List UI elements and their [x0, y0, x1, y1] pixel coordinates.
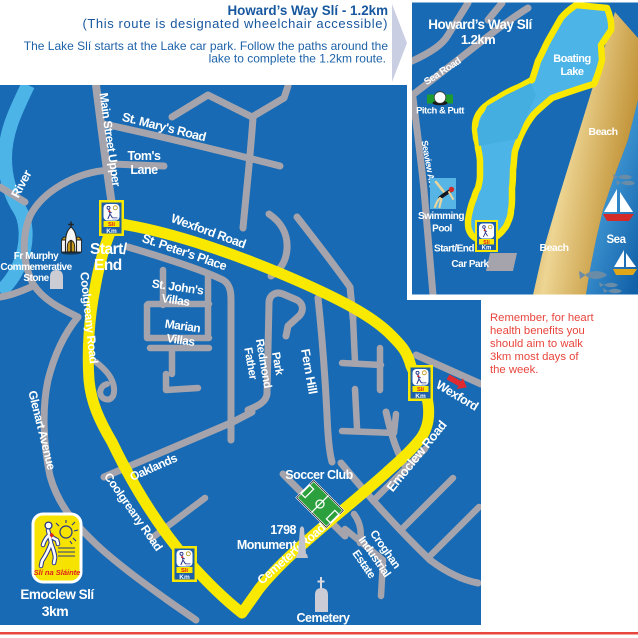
- svg-text:Sea: Sea: [607, 234, 627, 246]
- svg-text:Pitch & Putt: Pitch & Putt: [416, 106, 465, 117]
- svg-text:Howard’s Way Slí: Howard’s Way Slí: [428, 17, 533, 32]
- svg-text:Remember, for heart: Remember, for heart: [490, 312, 594, 324]
- svg-text:Car Park: Car Park: [451, 259, 489, 270]
- svg-text:Fr Murphy: Fr Murphy: [14, 251, 59, 262]
- svg-text:Tom's: Tom's: [128, 149, 161, 163]
- svg-text:Km: Km: [415, 393, 426, 400]
- svg-text:lake to complete the 1.2km rou: lake to complete the 1.2km route.: [209, 52, 386, 66]
- svg-text:1.2km: 1.2km: [461, 32, 495, 47]
- svg-text:Boating: Boating: [553, 53, 590, 65]
- svg-text:End: End: [94, 257, 122, 274]
- svg-text:Swimming: Swimming: [418, 211, 464, 222]
- svg-text:Beach: Beach: [588, 126, 617, 138]
- svg-text:Km: Km: [106, 228, 117, 235]
- svg-text:Pool: Pool: [432, 224, 452, 235]
- svg-text:Lake: Lake: [560, 66, 583, 78]
- svg-text:Start/End: Start/End: [434, 244, 474, 255]
- svg-text:Beach: Beach: [539, 242, 568, 254]
- svg-text:1798: 1798: [270, 523, 296, 537]
- svg-text:Slí na Sláinte: Slí na Sláinte: [34, 568, 81, 577]
- svg-text:should aim to walk: should aim to walk: [490, 338, 583, 350]
- svg-text:Emoclew Slí: Emoclew Slí: [20, 587, 95, 602]
- svg-text:Km: Km: [179, 574, 190, 581]
- svg-text:Stone: Stone: [23, 273, 49, 284]
- svg-text:3km: 3km: [42, 603, 69, 619]
- svg-text:Start/: Start/: [90, 241, 128, 258]
- svg-text:health benefits you: health benefits you: [490, 325, 585, 337]
- svg-text:Lane: Lane: [130, 163, 158, 177]
- svg-text:(This route is designated whee: (This route is designated wheelchair acc…: [82, 16, 388, 31]
- svg-text:Soccer Club: Soccer Club: [285, 468, 353, 482]
- svg-text:Commemerative: Commemerative: [0, 262, 72, 273]
- svg-text:the week.: the week.: [490, 364, 538, 376]
- svg-text:Cemetery: Cemetery: [297, 611, 351, 625]
- svg-text:Km: Km: [482, 246, 492, 252]
- svg-text:3km most days of: 3km most days of: [490, 351, 579, 363]
